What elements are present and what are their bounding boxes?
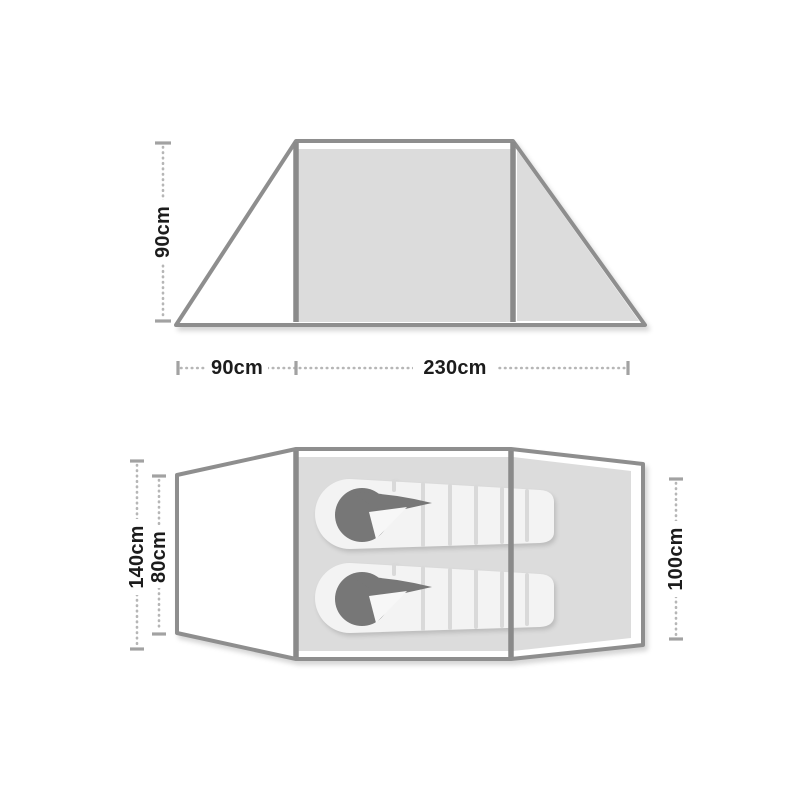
height-dimension-label: 90cm <box>152 206 174 258</box>
sleeping-bag-2 <box>315 563 554 633</box>
height-dimension: 90cm <box>151 143 175 321</box>
tent-dimension-diagram: 90cm 90cm 230cm <box>0 0 800 800</box>
total-width-label: 140cm <box>126 525 148 588</box>
foot-end-width-label: 100cm <box>665 527 687 590</box>
side-view-tent <box>176 141 645 325</box>
width-dimension: 90cm 230cm <box>178 356 628 380</box>
total-width-dimension: 140cm <box>125 461 149 649</box>
top-view-tent <box>177 449 643 659</box>
main-width-label: 230cm <box>423 357 486 379</box>
tent-side-inner-fabric <box>298 149 511 322</box>
porch-width-label: 90cm <box>211 357 263 379</box>
sleeping-bag-1 <box>315 479 554 549</box>
foot-end-width-dimension: 100cm <box>664 479 688 639</box>
inner-width-label: 80cm <box>148 531 170 583</box>
inner-width-dimension: 80cm <box>147 476 171 634</box>
tent-side-rear-fabric <box>517 150 639 321</box>
diagram-svg: 90cm 90cm 230cm <box>0 0 800 800</box>
top-view-diagram: 140cm 80cm 100cm <box>125 449 688 659</box>
side-view-diagram: 90cm 90cm 230cm <box>151 141 645 380</box>
